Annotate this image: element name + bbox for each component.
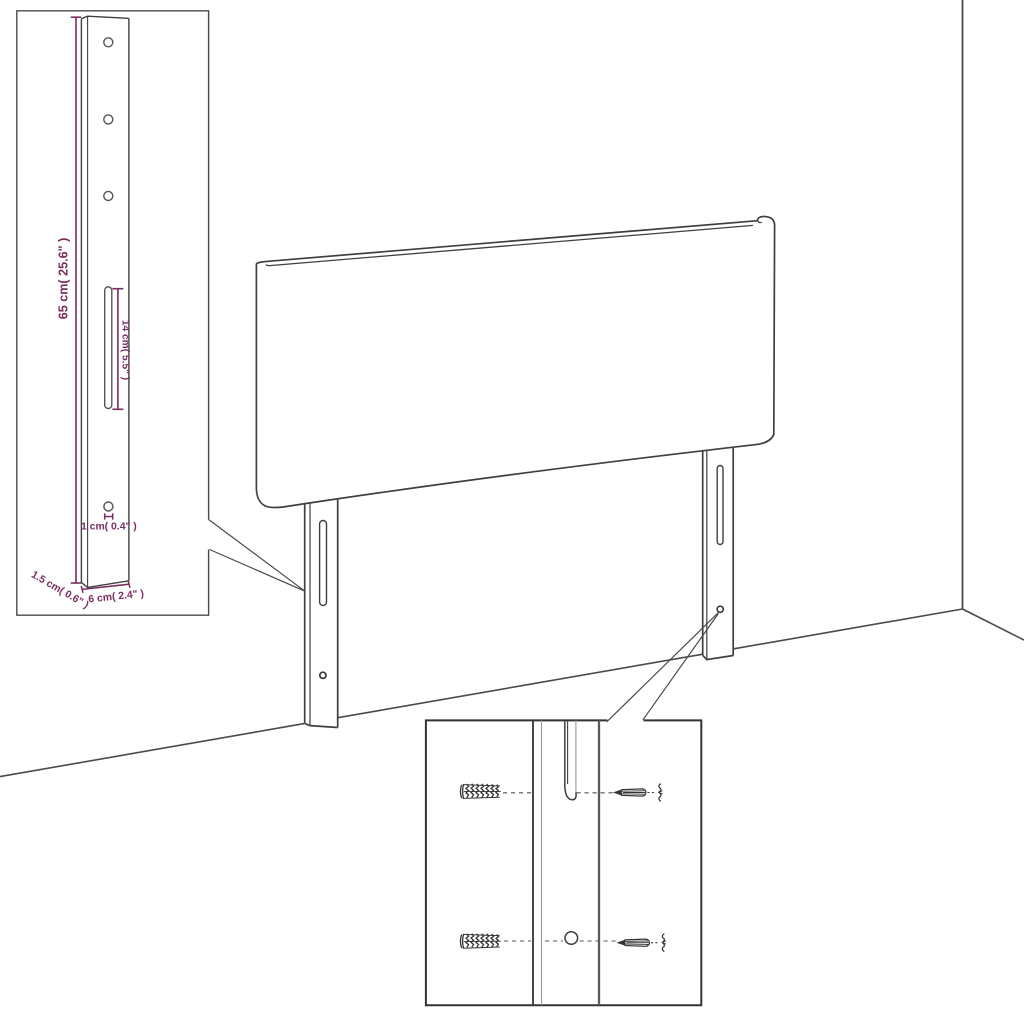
svg-text:14 cm( 5.5" ): 14 cm( 5.5" ) (119, 320, 130, 380)
svg-text:1 cm( 0.4" ): 1 cm( 0.4" ) (81, 522, 137, 533)
svg-text:65 cm( 25.6" ): 65 cm( 25.6" ) (56, 238, 70, 320)
